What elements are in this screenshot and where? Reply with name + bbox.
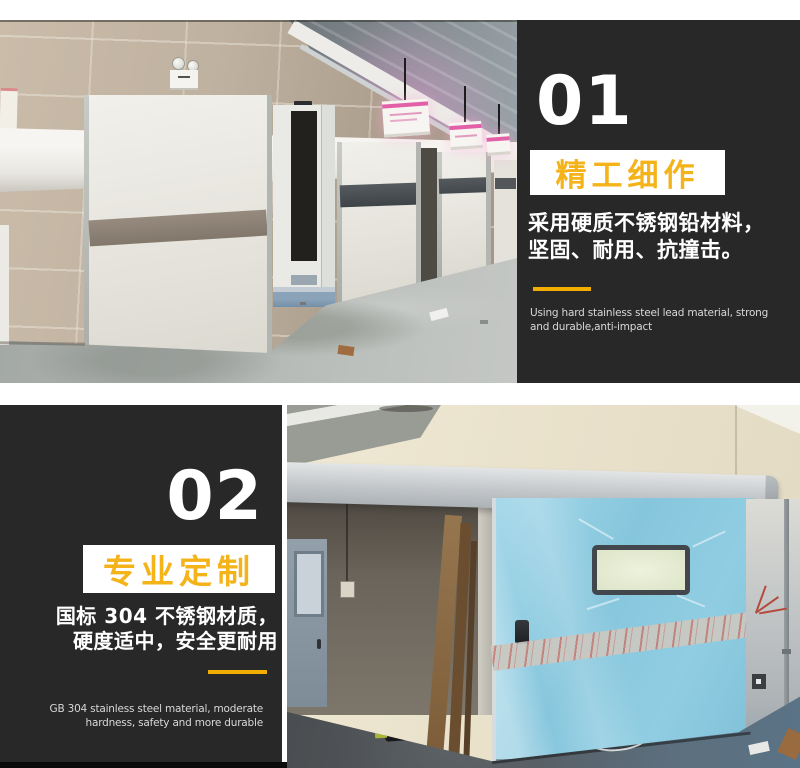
film-streak bbox=[677, 594, 706, 607]
sliding-door-3 bbox=[437, 152, 491, 284]
feature-body-line-1: 国标 304 不锈钢材质， bbox=[6, 604, 278, 629]
feature-number: 02 bbox=[166, 463, 263, 531]
floor-debris-small-2 bbox=[480, 320, 488, 324]
hanging-lightbox-1 bbox=[382, 98, 430, 137]
hanging-wire bbox=[346, 501, 348, 581]
film-streak bbox=[578, 518, 614, 540]
corridor-photo bbox=[0, 20, 517, 383]
back-room-door bbox=[287, 539, 327, 707]
feature-panel-1: 01 精工细作 采用硬质不锈钢铅材料， 坚固、耐用、抗撞击。 Using har… bbox=[517, 20, 800, 383]
doorway-opening bbox=[287, 501, 493, 715]
light-switch bbox=[340, 581, 355, 598]
feature-number: 01 bbox=[536, 68, 633, 136]
hanging-lightbox-3 bbox=[486, 133, 510, 156]
doorway-dark-opening bbox=[291, 111, 317, 261]
feature-title: 专业定制 bbox=[103, 545, 255, 593]
emergency-light-icon bbox=[170, 70, 198, 90]
accent-underline bbox=[533, 287, 591, 291]
hanging-lightbox-2 bbox=[449, 121, 483, 150]
feature-body: 国标 304 不锈钢材质， 硬度适中，安全更耐用 bbox=[6, 604, 278, 654]
sliding-door-large bbox=[84, 95, 272, 376]
door-4-window-stripe bbox=[495, 178, 516, 189]
feature-body-line-2: 坚固、耐用、抗撞击。 bbox=[528, 237, 796, 264]
feature-caption-en: GB 304 stainless steel material, moderat… bbox=[13, 702, 263, 730]
accent-underline bbox=[208, 670, 267, 674]
lightbox-rod-3 bbox=[498, 104, 500, 136]
bottom-dark-bar bbox=[0, 762, 287, 768]
door-2-window-stripe bbox=[340, 183, 419, 208]
open-doorway bbox=[273, 105, 335, 307]
back-door-window bbox=[294, 551, 324, 617]
feature-caption-en: Using hard stainless steel lead material… bbox=[530, 306, 782, 334]
door-3-window-stripe bbox=[439, 177, 489, 194]
film-streak bbox=[692, 530, 725, 547]
outlet-box bbox=[752, 674, 766, 689]
protective-tape-stripe bbox=[490, 611, 761, 671]
ceiling-smudge bbox=[379, 405, 433, 412]
feature-body-line-2: 硬度适中，安全更耐用 bbox=[6, 629, 278, 654]
sliding-door-2 bbox=[337, 142, 421, 310]
blue-door-photo bbox=[287, 405, 800, 768]
film-streak bbox=[587, 598, 620, 610]
pipe-clamp bbox=[782, 649, 791, 654]
photo-top-edge bbox=[0, 20, 517, 22]
back-door-handle bbox=[317, 639, 321, 649]
product-detail-page: 01 精工细作 采用硬质不锈钢铅材料， 坚固、耐用、抗撞击。 Using har… bbox=[0, 0, 800, 768]
doorway-frame bbox=[478, 501, 493, 715]
white-debris bbox=[748, 741, 770, 755]
door-stripe bbox=[88, 210, 267, 247]
floor-debris-small bbox=[300, 302, 306, 305]
sliding-door-4 bbox=[494, 160, 517, 272]
feature-title-box: 专业定制 bbox=[83, 545, 275, 593]
blue-sliding-door bbox=[492, 498, 754, 764]
doorway-pillar bbox=[321, 105, 335, 307]
feature-title: 精工细作 bbox=[556, 150, 700, 195]
feature-body-line-1: 采用硬质不锈钢铅材料， bbox=[528, 210, 796, 237]
feature-title-box: 精工细作 bbox=[530, 150, 725, 195]
lightbox-rod-1 bbox=[404, 58, 406, 102]
doorway-kickplate bbox=[291, 275, 317, 285]
emergency-lamp-left bbox=[172, 57, 185, 70]
lightbox-rod-2 bbox=[464, 86, 466, 124]
cardboard-debris bbox=[777, 728, 800, 760]
feature-panel-2: 02 专业定制 国标 304 不锈钢材质， 硬度适中，安全更耐用 GB 304 … bbox=[0, 405, 282, 768]
left-door-edge bbox=[0, 225, 9, 345]
door-window bbox=[592, 545, 690, 595]
feature-body: 采用硬质不锈钢铅材料， 坚固、耐用、抗撞击。 bbox=[528, 210, 796, 264]
